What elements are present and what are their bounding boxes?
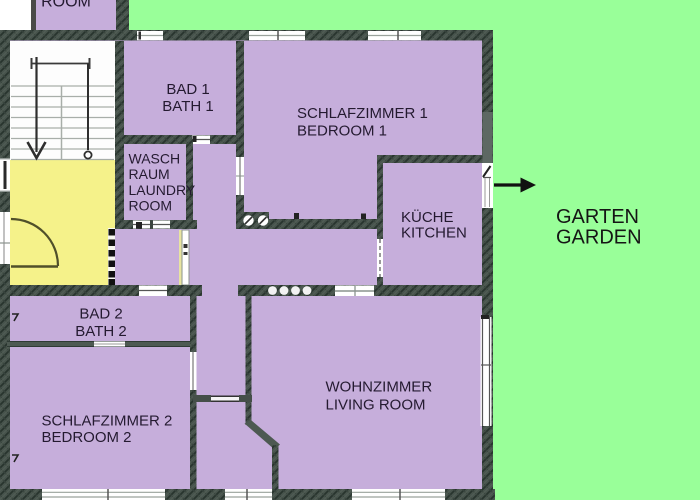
svg-text:KITCHEN: KITCHEN	[401, 225, 467, 242]
svg-text:RAUM: RAUM	[129, 166, 170, 182]
svg-text:SCHLAFZIMMER 1: SCHLAFZIMMER 1	[297, 105, 428, 122]
svg-text:BAD 1: BAD 1	[166, 81, 209, 98]
svg-text:KÜCHE: KÜCHE	[401, 208, 454, 226]
svg-text:GARTEN: GARTEN	[556, 206, 639, 228]
svg-text:SCHLAFZIMMER 2: SCHLAFZIMMER 2	[42, 413, 173, 430]
svg-text:BATH 1: BATH 1	[162, 98, 213, 115]
svg-text:WOHNZIMMER: WOHNZIMMER	[326, 379, 433, 396]
svg-text:BEDROOM 1: BEDROOM 1	[297, 123, 387, 140]
svg-text:GARDEN: GARDEN	[556, 227, 642, 249]
svg-text:BAD 2: BAD 2	[79, 306, 122, 323]
svg-text:LAUNDRY: LAUNDRY	[129, 182, 196, 198]
svg-text:BATH 2: BATH 2	[75, 323, 126, 340]
svg-text:WASCH: WASCH	[129, 151, 181, 167]
svg-text:ROOM: ROOM	[129, 198, 173, 214]
svg-text:BEDROOM 2: BEDROOM 2	[42, 429, 132, 446]
svg-text:ROOM: ROOM	[41, 0, 91, 11]
svg-text:LIVING ROOM: LIVING ROOM	[326, 397, 426, 414]
